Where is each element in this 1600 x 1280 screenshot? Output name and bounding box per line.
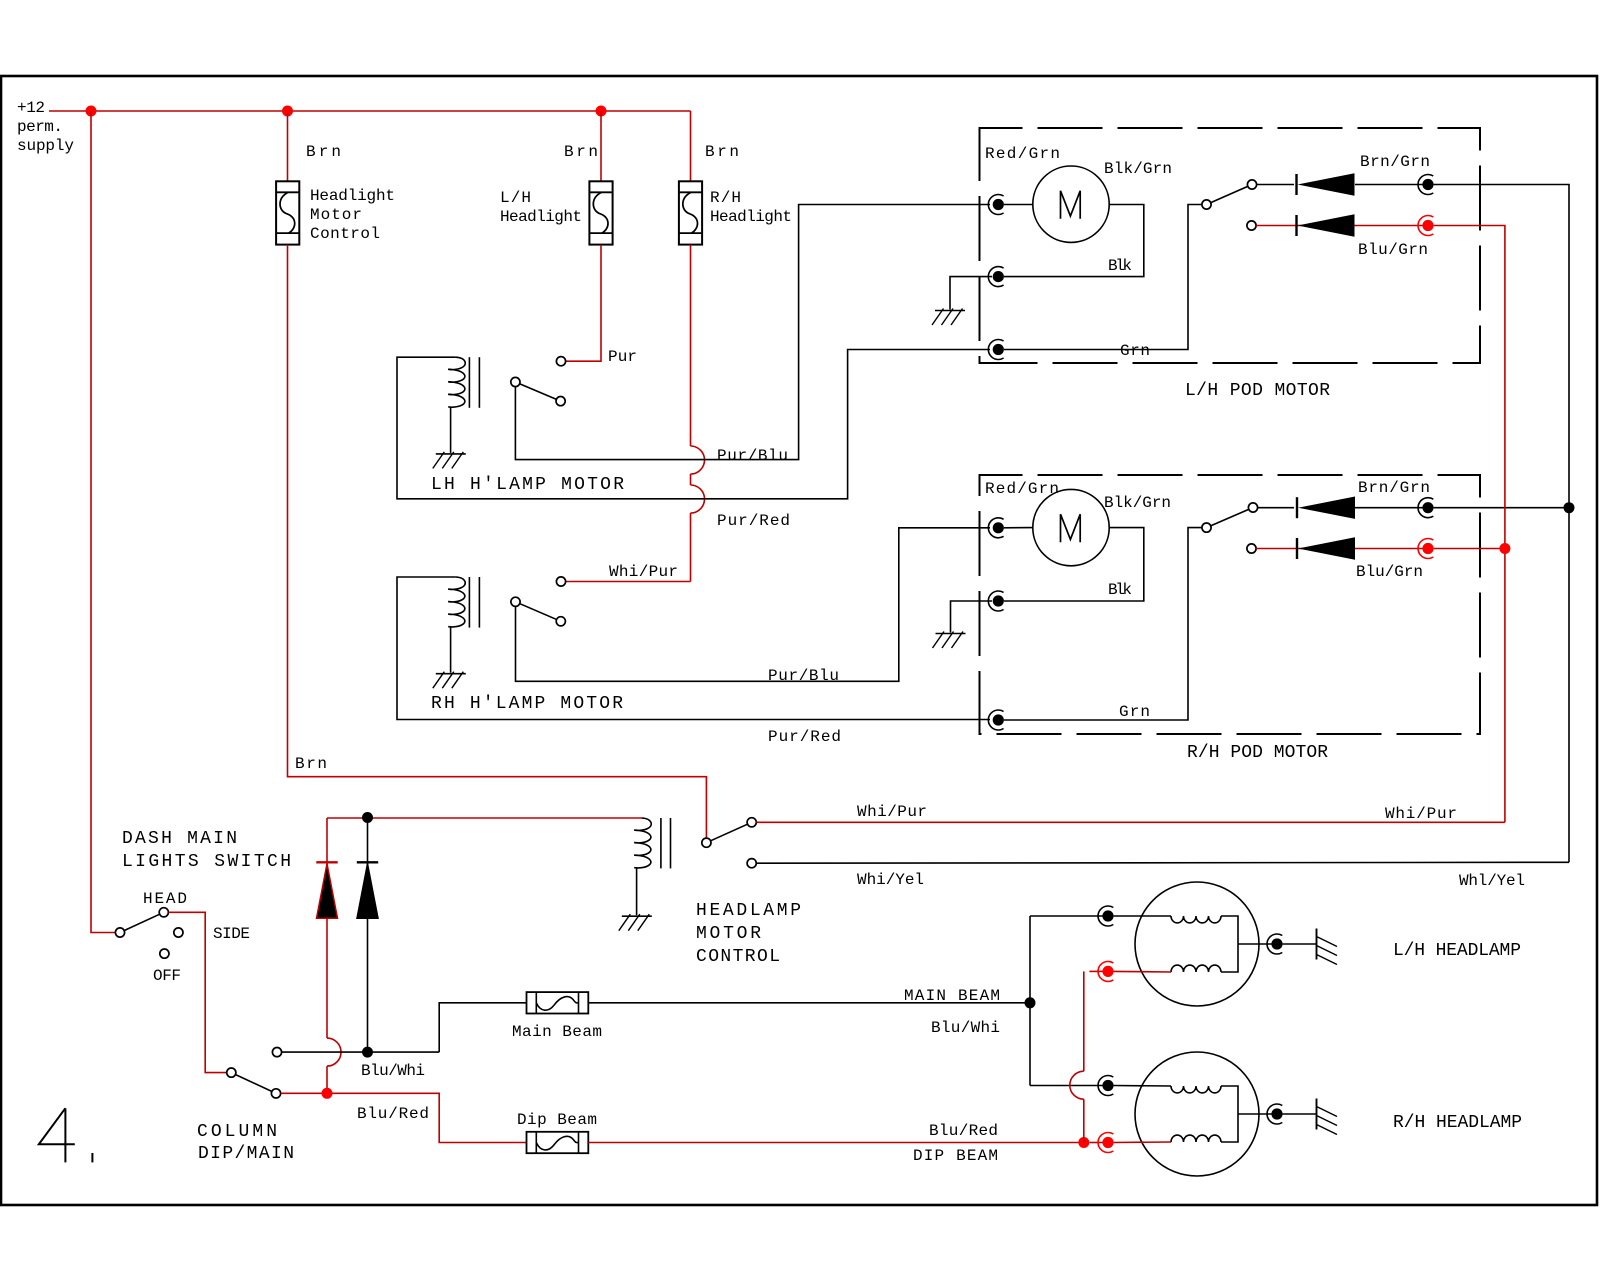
svg-text:Brn/Grn: Brn/Grn [1358,479,1430,497]
svg-text:Headlight: Headlight [500,208,582,226]
svg-text:Pur/Red: Pur/Red [717,512,790,530]
svg-text:R/H HEADLAMP: R/H HEADLAMP [1393,1113,1522,1133]
svg-text:SIDE: SIDE [213,925,250,943]
svg-text:Brn/Grn: Brn/Grn [1360,153,1430,171]
svg-text:supply: supply [17,137,74,155]
svg-text:Whi/Pur: Whi/Pur [609,563,678,581]
svg-text:Red/Grn: Red/Grn [985,145,1060,163]
svg-text:Main Beam: Main Beam [512,1023,602,1041]
svg-text:L/H POD MOTOR: L/H POD MOTOR [1185,381,1330,401]
svg-text:Blu/Whi: Blu/Whi [361,1062,425,1080]
svg-text:RH H'LAMP MOTOR: RH H'LAMP MOTOR [431,694,623,714]
svg-text:Blu/Whi: Blu/Whi [931,1019,1000,1037]
svg-text:LH H'LAMP MOTOR: LH H'LAMP MOTOR [431,475,624,495]
svg-text:Blu/Grn: Blu/Grn [1356,563,1423,581]
svg-text:Whi/Pur: Whi/Pur [857,803,927,821]
svg-text:MOTOR: MOTOR [696,924,761,944]
svg-text:Pur/Blu: Pur/Blu [768,667,839,685]
svg-text:Blk: Blk [1108,257,1132,275]
svg-text:Motor: Motor [310,206,362,224]
svg-text:Brn: Brn [705,143,739,161]
svg-text:+12: +12 [17,99,45,117]
svg-text:Brn: Brn [306,143,341,161]
svg-text:Blk: Blk [1108,581,1132,599]
svg-text:DIP BEAM: DIP BEAM [913,1147,998,1165]
svg-text:Blk/Grn: Blk/Grn [1104,494,1171,512]
svg-text:OFF: OFF [153,967,181,985]
svg-text:MAIN BEAM: MAIN BEAM [904,987,1000,1005]
svg-text:L/H: L/H [500,189,531,207]
svg-text:Blu/Red: Blu/Red [357,1105,429,1123]
svg-text:Pur/Blu: Pur/Blu [717,447,788,465]
svg-text:Headlight: Headlight [310,187,395,205]
svg-text:HEAD: HEAD [143,890,187,908]
svg-text:Dip Beam: Dip Beam [517,1111,597,1129]
svg-text:Brn: Brn [564,143,598,161]
svg-text:Whl/Yel: Whl/Yel [1459,872,1525,890]
svg-text:Red/Grn: Red/Grn [985,480,1059,498]
svg-text:Blu/Red: Blu/Red [929,1122,998,1140]
svg-text:Brn: Brn [295,755,327,773]
svg-text:R/H POD MOTOR: R/H POD MOTOR [1187,743,1328,763]
svg-text:Pur/Red: Pur/Red [768,728,841,746]
svg-text:R/H: R/H [710,189,741,207]
svg-text:perm.: perm. [17,118,63,136]
svg-text:DIP/MAIN: DIP/MAIN [198,1144,294,1164]
svg-text:DASH MAIN: DASH MAIN [122,829,237,849]
svg-text:Blk/Grn: Blk/Grn [1104,160,1172,178]
svg-text:Headlight: Headlight [710,208,792,226]
svg-text:L/H HEADLAMP: L/H HEADLAMP [1393,941,1521,961]
svg-text:Pur: Pur [608,348,637,366]
svg-text:Whi/Pur: Whi/Pur [1385,805,1457,823]
svg-text:CONTROL: CONTROL [696,947,780,967]
svg-text:Blu/Grn: Blu/Grn [1358,241,1428,259]
svg-text:Grn: Grn [1120,342,1150,360]
svg-text:Grn: Grn [1119,703,1150,721]
svg-text:Control: Control [310,225,380,243]
svg-text:Whi/Yel: Whi/Yel [857,871,924,889]
